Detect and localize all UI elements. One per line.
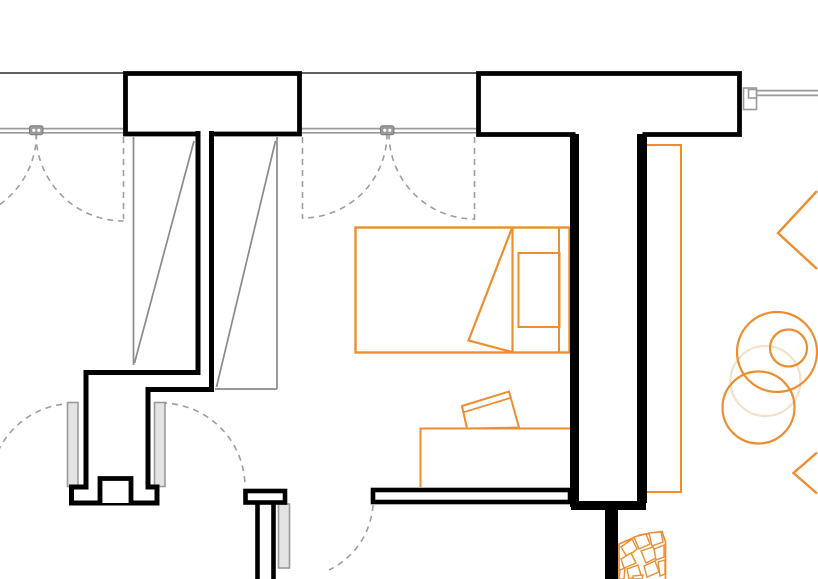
window1-right-sash-swing-arc: [36, 134, 124, 222]
bottom-door-leaf: [279, 504, 290, 568]
bed-outline: [356, 228, 570, 353]
decor-diamond-top-right: [778, 191, 817, 269]
window3-end-connector-tab: [749, 90, 757, 99]
mosaic-shard: [621, 553, 636, 568]
window1-hinge-dot-right: [37, 129, 40, 132]
desk-chair-backrest-line: [464, 398, 511, 413]
wall-pier-bottom-cap: [246, 491, 286, 503]
mosaic-shard: [654, 545, 664, 560]
side-table-faint-circle: [731, 346, 801, 416]
window2-hinge-connector: [381, 126, 395, 135]
closet-symbols-layer: [134, 137, 278, 389]
wall-left-stepped-partition: [72, 131, 212, 503]
floorplan-canvas: [0, 0, 818, 579]
decor-diamond-bottom-right: [794, 453, 818, 494]
window1-left-sash-swing-arc: [0, 134, 37, 206]
window2-right-sash-swing-arc: [389, 134, 475, 220]
bed-blanket-fold: [469, 228, 513, 352]
floor-mosaic-layer: [619, 532, 666, 579]
window1-hinge-dot-left: [32, 129, 35, 132]
wall-bottom-bar: [373, 490, 570, 502]
armchair-circle-lower: [723, 372, 795, 444]
closet-left-door-diagonal: [135, 141, 195, 363]
window1-hinge-connector: [30, 126, 44, 135]
furniture-layer: [356, 145, 818, 494]
wall-threshold-mullion-tooth: [100, 479, 131, 504]
floorplan-svg: [0, 0, 818, 579]
bottom-door-swing-arc: [329, 505, 373, 570]
window2-left-sash-swing-arc: [303, 134, 388, 219]
wall-pier-left: [126, 74, 300, 135]
hall-door-left-leaf: [68, 403, 79, 487]
hall-door-right-swing-arc: [161, 403, 245, 487]
window2-hinge-dot-right: [388, 129, 391, 132]
mosaic-shard: [658, 560, 665, 576]
bed-pillow: [519, 253, 560, 327]
mosaic-shard: [633, 575, 643, 579]
closet-right-door-diagonal: [217, 141, 276, 387]
wall-pier-top-right: [479, 74, 740, 135]
walls-layer: [72, 74, 740, 579]
armchair-circle-large: [737, 312, 817, 392]
hall-door-left-swing-arc: [0, 404, 73, 488]
mosaic-shard: [649, 532, 663, 546]
hall-door-right-leaf: [155, 403, 166, 487]
desk-outline: [421, 429, 573, 488]
mosaic-shard: [619, 568, 625, 579]
window2-hinge-dot-left: [383, 129, 386, 132]
